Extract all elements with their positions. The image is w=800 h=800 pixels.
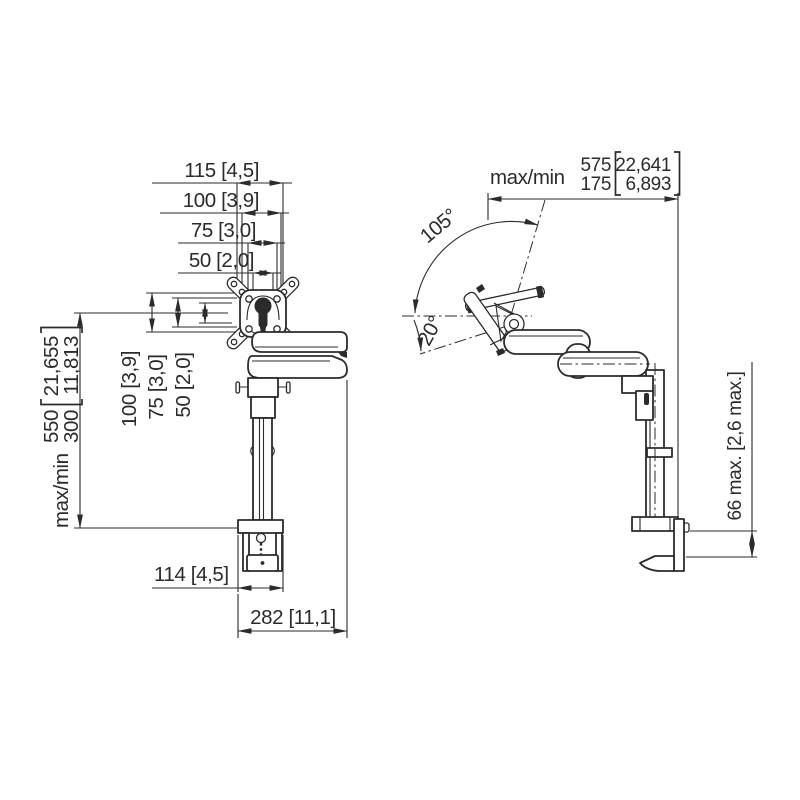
dim-label-50w: 50 [2,0]	[189, 249, 254, 272]
vesa-keyhole	[259, 306, 268, 328]
wing-screw-right	[287, 382, 291, 393]
tilt-down-label: 20°	[413, 312, 447, 349]
depth-min-in: 6,893	[625, 174, 671, 195]
dim-label-75h: 75 [3,0]	[145, 354, 168, 419]
front-desk-clamp	[238, 520, 283, 571]
technical-drawing-page: 115 [4,5] 100 [3,9] 75 [3,0] 50 [2,0] 10…	[0, 0, 800, 800]
dim-label-115: 115 [4,5]	[184, 159, 259, 182]
dim-label-282: 282 [11,1]	[250, 606, 336, 629]
depth-max-mm: 575	[580, 155, 611, 176]
front-vesa-width-dims: 115 [4,5] 100 [3,9] 75 [3,0] 50 [2,0]	[152, 159, 292, 297]
wing-screw-left	[236, 382, 240, 393]
clamp-jaw	[640, 556, 674, 571]
front-height-label: max/min 550 300 21,655 11,813	[40, 328, 83, 529]
bracket-left	[41, 399, 82, 405]
side-desk-clamp	[632, 517, 689, 571]
front-arm	[248, 332, 347, 378]
depth-min-mm: 175	[580, 174, 611, 195]
dim-label-100w: 100 [3,9]	[183, 189, 259, 212]
monitor-arm-dimension-drawing: 115 [4,5] 100 [3,9] 75 [3,0] 50 [2,0] 10…	[0, 0, 800, 800]
side-arm	[504, 330, 650, 378]
bracket-right	[41, 328, 82, 334]
side-view: max/min 575 175 22,641 6,893 105° 20°	[402, 152, 757, 571]
height-min-in: 11,813	[60, 336, 83, 395]
dim-label-114: 114 [4,5]	[154, 563, 229, 586]
height-min-mm: 300	[60, 410, 83, 443]
side-pole	[622, 363, 672, 530]
front-view: 115 [4,5] 100 [3,9] 75 [3,0] 50 [2,0] 10…	[40, 159, 347, 638]
dim-label-100h: 100 [3,9]	[118, 351, 141, 427]
bracket-right	[674, 152, 680, 195]
dim-label-50h: 50 [2,0]	[172, 352, 195, 417]
dim-label-75w: 75 [3,0]	[191, 219, 256, 242]
dim-label-66max: 66 max. [2,6 max.]	[725, 371, 746, 520]
front-pole	[236, 378, 290, 520]
side-desk-thickness-dim: 66 max. [2,6 max.]	[686, 362, 757, 557]
height-maxmin-label: max/min	[50, 453, 73, 528]
clamp-screw-head	[257, 534, 266, 543]
depth-max-in: 22,641	[615, 155, 671, 176]
tilt-up-label: 105°	[416, 204, 462, 248]
depth-maxmin-label: max/min	[490, 166, 565, 189]
